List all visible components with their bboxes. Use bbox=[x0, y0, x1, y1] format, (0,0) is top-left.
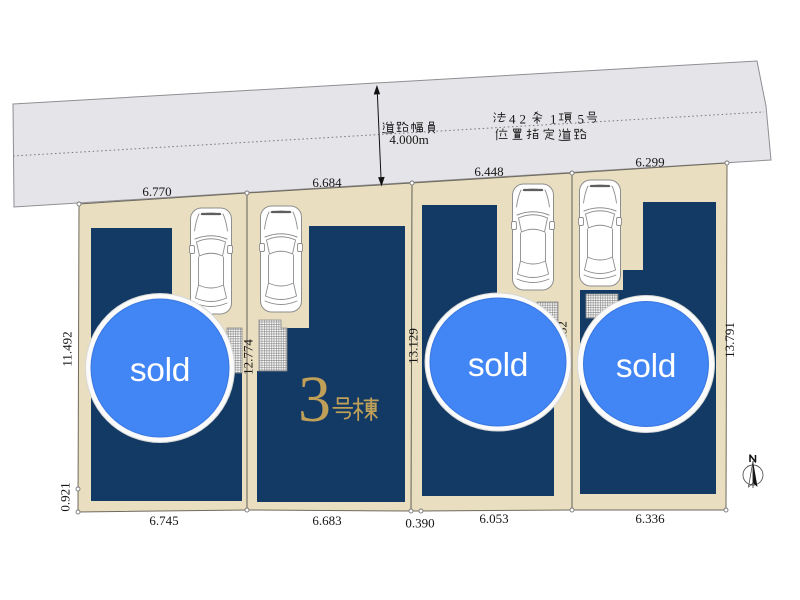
svg-text:0.921: 0.921 bbox=[58, 482, 73, 511]
svg-text:6.299: 6.299 bbox=[635, 155, 664, 170]
svg-text:13.129: 13.129 bbox=[406, 328, 421, 364]
svg-text:11.492: 11.492 bbox=[60, 331, 75, 366]
svg-text:6.770: 6.770 bbox=[142, 184, 171, 199]
svg-text:6.745: 6.745 bbox=[149, 513, 178, 528]
svg-text:6.683: 6.683 bbox=[312, 513, 341, 528]
svg-text:6.053: 6.053 bbox=[479, 511, 508, 526]
svg-text:sold: sold bbox=[130, 352, 190, 389]
svg-text:13.791: 13.791 bbox=[722, 322, 737, 358]
svg-text:sold: sold bbox=[616, 348, 676, 385]
svg-text:6.336: 6.336 bbox=[635, 511, 665, 526]
svg-text:5: 5 bbox=[578, 112, 585, 127]
svg-text:6.684: 6.684 bbox=[312, 175, 342, 190]
svg-text:0.390: 0.390 bbox=[405, 516, 434, 531]
svg-text:42: 42 bbox=[509, 112, 530, 127]
svg-text:sold: sold bbox=[468, 347, 528, 384]
svg-text:1: 1 bbox=[550, 112, 557, 127]
svg-text:12.774: 12.774 bbox=[241, 339, 256, 375]
svg-text:6.448: 6.448 bbox=[474, 164, 503, 179]
svg-text:3: 3 bbox=[298, 363, 331, 436]
svg-text:4.000m: 4.000m bbox=[389, 132, 428, 147]
